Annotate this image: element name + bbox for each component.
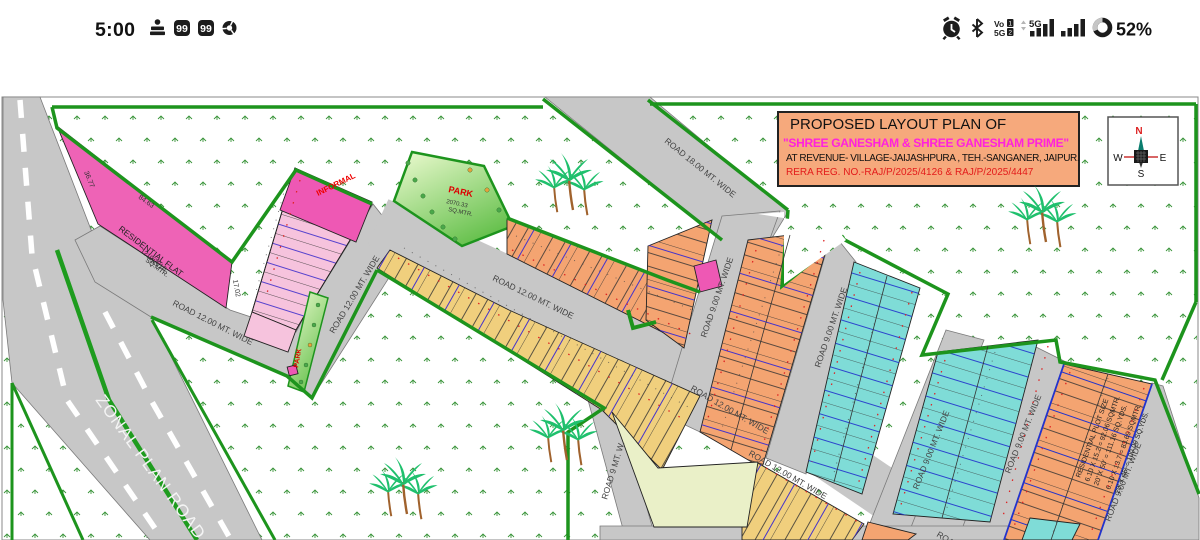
svg-text:"SHREE GANESHAM & SHREE GANESH: "SHREE GANESHAM & SHREE GANESHAM PRIME" — [783, 136, 1069, 150]
svg-text:S: S — [1138, 169, 1145, 180]
svg-text:E: E — [1160, 153, 1167, 164]
svg-text:RERA REG. NO.-RAJ/P/2025/4126: RERA REG. NO.-RAJ/P/2025/4126 & RAJ/P/20… — [786, 167, 1034, 178]
svg-text:PROPOSED LAYOUT PLAN OF: PROPOSED LAYOUT PLAN OF — [790, 116, 1006, 133]
svg-text:AT REVENUE- VILLAGE-JAIJASHPUR: AT REVENUE- VILLAGE-JAIJASHPURA , TEH.-S… — [786, 153, 1079, 164]
svg-text:W: W — [1113, 153, 1123, 164]
svg-text:N: N — [1135, 126, 1142, 137]
